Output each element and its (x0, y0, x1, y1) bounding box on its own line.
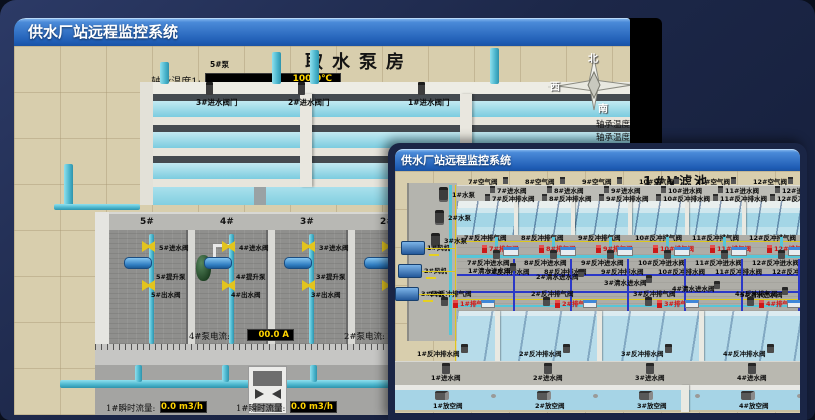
backwash-pump-icon[interactable] (435, 210, 444, 223)
air-valve-label[interactable]: 10#空气阀 (639, 178, 673, 186)
cell-drain-valve-icon[interactable] (599, 194, 604, 201)
basin-wall (140, 125, 630, 132)
intake-valve-icon[interactable] (206, 82, 213, 95)
backwash-pump-icon[interactable] (439, 187, 448, 200)
air-pipe (449, 185, 452, 335)
inlet-valve-label[interactable]: 4#进水阀 (239, 244, 268, 252)
bottom-clear-water-tank (481, 300, 495, 308)
back-window-title: 供水厂站远程监控系统 (28, 23, 178, 41)
compass: 北 西 南 (548, 54, 630, 118)
backwash-vent-label[interactable]: 11#反冲排气阀 (692, 234, 739, 242)
backwash-drain-label[interactable]: 10#反冲排水阀 (658, 268, 705, 276)
cell-drain-valve-label[interactable]: 8#反冲排水阀 (549, 195, 591, 203)
lift-pump-icon[interactable] (284, 257, 312, 269)
cell-drain-valve-icon[interactable] (713, 194, 718, 201)
pool-inlet-valve-icon[interactable] (748, 363, 756, 374)
channel-float (695, 394, 700, 398)
cell-inlet-valve-icon[interactable] (661, 186, 666, 193)
clear-water-tank (674, 247, 690, 256)
bottom-exhaust-valve-icon[interactable] (657, 300, 662, 308)
front-window: 供水厂站远程监控系统 1#V滤池 (388, 143, 807, 420)
backwash-drain-label[interactable]: 9#反冲排水阀 (601, 268, 643, 276)
bottom-pipe-valve-icon[interactable] (441, 297, 448, 306)
pool-divider (699, 311, 704, 361)
clear-water-tank (617, 247, 633, 256)
intake-valve-label[interactable]: 1#进水阀门 (408, 97, 450, 106)
bottom-pipe-valve-icon[interactable] (747, 297, 754, 306)
outlet-branch-pipe (135, 365, 142, 382)
cell-inlet-valve-icon[interactable] (547, 186, 552, 193)
desktop-background: 供水厂站远程监控系统 取水泵房 5#泵 轴承温度1:100.0℃轴承温度2:10… (0, 0, 815, 420)
compass-south: 南 (598, 100, 608, 115)
pool-drain-valve-icon[interactable] (563, 344, 570, 353)
outlet-branch-pipe (222, 365, 229, 382)
exhaust-valve-icon[interactable] (539, 245, 544, 253)
air-valve-icon[interactable] (674, 177, 679, 184)
backwash-pump-label[interactable]: 1#水泵 (452, 191, 475, 199)
pool-inlet-valve-label[interactable]: 3#进水阀 (635, 374, 664, 382)
pump-current-label: 4#泵电流: (189, 330, 230, 340)
front-window-title: 供水厂站远程监控系统 (401, 154, 511, 167)
air-valve-label[interactable]: 11#空气阀 (696, 178, 730, 186)
cell-inlet-valve-icon[interactable] (604, 186, 609, 193)
pool-divider (597, 311, 602, 361)
pool-inlet-valve-icon[interactable] (646, 363, 654, 374)
compass-west: 西 (550, 78, 560, 93)
pump-bay-number: 3# (300, 217, 314, 227)
pool-drain-valve-label[interactable]: 1#反冲排水阀 (417, 350, 459, 358)
pipe-valve-icon[interactable] (493, 250, 500, 259)
blower-icon[interactable] (398, 264, 422, 278)
intake-valve-icon[interactable] (298, 82, 305, 95)
air-valve-label[interactable]: 7#空气阀 (468, 178, 497, 186)
transfer-pipe (54, 204, 140, 210)
pool-inlet-valve-label[interactable]: 1#进水阀 (431, 374, 460, 382)
cell-drain-valve-label[interactable]: 12#反冲排水阀 (777, 195, 800, 203)
bottom-clear-water-tank (787, 300, 800, 308)
exhaust-valve-icon[interactable] (596, 245, 601, 253)
lift-pump-label[interactable]: 5#提升泵 (156, 273, 185, 281)
flow-display: 0.0 m3/h (160, 401, 207, 413)
backwash-inlet-label[interactable]: 11#反冲进水阀 (695, 259, 742, 267)
pump-bay-number: 4# (220, 217, 234, 227)
backwash-inlet-label[interactable]: 10#反冲进水阀 (638, 259, 685, 267)
exhaust-valve-icon[interactable] (767, 245, 772, 253)
backwash-vent-label[interactable]: 10#反冲排气阀 (635, 234, 682, 242)
inlet-valve-label[interactable]: 3#进水阀 (319, 244, 348, 252)
scene-filter-pool: 1#V滤池 (395, 171, 800, 413)
blower-status-tick (426, 277, 436, 279)
channel-divider (681, 385, 689, 412)
cell-drain-valve-label[interactable]: 7#反冲排水阀 (492, 195, 534, 203)
inlet-valve-label[interactable]: 5#进水阀 (159, 244, 188, 252)
pump-panel-header: 5#泵 (210, 59, 229, 70)
outlet-valve-label[interactable]: 3#出水阀 (311, 291, 340, 299)
exhaust-valve-icon[interactable] (653, 245, 658, 253)
back-window-titlebar[interactable]: 供水厂站远程监控系统 (14, 18, 630, 46)
bottom-clear-water-tank (685, 300, 699, 308)
pump-current-label: 2#泵电流: (344, 330, 385, 340)
backwash-vent-label[interactable]: 8#反冲排气阀 (521, 234, 563, 242)
raw-water-pipe (310, 50, 319, 84)
air-valve-icon[interactable] (788, 177, 793, 184)
cell-drain-valve-icon[interactable] (542, 194, 547, 201)
flow-label: 1#瞬时流量: (106, 402, 155, 412)
blower-pipe (425, 248, 455, 249)
blower-pipe (419, 294, 455, 295)
clean-water-valve-label[interactable]: 1#清水进水阀 (468, 267, 510, 275)
cell-inlet-valve-label[interactable]: 8#进水阀 (554, 187, 583, 195)
pump-room-left-wall (95, 212, 109, 365)
raw-water-pipe (160, 62, 169, 84)
air-valve-icon[interactable] (617, 177, 622, 184)
intake-valve-label[interactable]: 3#进水阀门 (196, 97, 238, 106)
outlet-branch-pipe (310, 365, 317, 382)
pool-divider (514, 201, 518, 235)
bottom-pipe-valve-icon[interactable] (645, 297, 652, 306)
partial-sensor-label: 轴承温度2 (596, 131, 630, 141)
intake-valve-icon[interactable] (418, 82, 425, 95)
blower-icon[interactable] (401, 241, 425, 255)
intake-valve-label[interactable]: 2#进水阀门 (288, 97, 330, 106)
cell-inlet-valve-icon[interactable] (718, 186, 723, 193)
cell-inlet-valve-label[interactable]: 10#进水阀 (668, 187, 702, 195)
basin-wall (140, 117, 630, 125)
clean-water-valve-icon[interactable] (782, 287, 788, 295)
empty-valve-icon[interactable] (435, 391, 449, 400)
pool-inlet-valve-label[interactable]: 2#进水阀 (533, 374, 562, 382)
bottom-exhaust-valve-icon[interactable] (759, 300, 764, 308)
backwash-vent-label[interactable]: 9#反冲排气阀 (578, 234, 620, 242)
cell-inlet-valve-label[interactable]: 12#进水阀 (782, 187, 800, 195)
cell-inlet-valve-icon[interactable] (775, 186, 780, 193)
cell-drain-valve-icon[interactable] (485, 194, 490, 201)
blower-icon[interactable] (395, 287, 419, 301)
air-valve-label[interactable]: 8#空气阀 (525, 178, 554, 186)
cell-inlet-valve-label[interactable]: 11#进水阀 (725, 187, 759, 195)
pool-drain-valve-icon[interactable] (461, 344, 468, 353)
backwash-pump-label[interactable]: 2#水泵 (448, 214, 471, 222)
pool-divider (628, 201, 632, 235)
bottom-exhaust-valve-icon[interactable] (453, 300, 458, 308)
pool-drain-valve-label[interactable]: 2#反冲排水阀 (519, 350, 561, 358)
air-valve-icon[interactable] (503, 177, 508, 184)
backwash-branch-pipe (741, 259, 743, 311)
cell-inlet-valve-label[interactable]: 7#进水阀 (497, 187, 526, 195)
pool-inlet-valve-icon[interactable] (442, 363, 450, 374)
raw-water-pipe (490, 48, 499, 84)
forebay-pier (254, 187, 266, 205)
pool-divider (742, 201, 746, 235)
outlet-valve-label[interactable]: 4#出水阀 (231, 291, 260, 299)
air-valve-label[interactable]: 9#空气阀 (582, 178, 611, 186)
blower-status-tick (429, 254, 439, 256)
pipe-valve-icon[interactable] (550, 250, 557, 259)
empty-valve-icon[interactable] (537, 391, 551, 400)
cell-drain-valve-icon[interactable] (656, 194, 661, 201)
empty-valve-label[interactable]: 1#放空阀 (433, 402, 462, 410)
channel-float (797, 394, 800, 398)
backwash-vent-label[interactable]: 7#反冲排气阀 (464, 234, 506, 242)
lift-pump-icon[interactable] (204, 257, 232, 269)
front-window-titlebar[interactable]: 供水厂站远程监控系统 (395, 149, 800, 171)
lift-pump-label[interactable]: 3#提升泵 (316, 273, 345, 281)
raw-water-pipe (272, 52, 281, 84)
lift-pump-label[interactable]: 4#提升泵 (236, 273, 265, 281)
blower-status-tick (423, 300, 433, 302)
clean-water-valve-label[interactable]: 4#清水进水阀 (672, 285, 714, 293)
channel-float (491, 394, 496, 398)
outlet-valve-label[interactable]: 5#出水阀 (151, 291, 180, 299)
pool-drain-valve-label[interactable]: 3#反冲排水阀 (621, 350, 663, 358)
backwash-vent-label[interactable]: 12#反冲排气阀 (749, 234, 796, 242)
empty-valve-icon[interactable] (639, 391, 653, 400)
exhaust-valve-icon[interactable] (710, 245, 715, 253)
bottom-clear-water-tank (583, 300, 597, 308)
backwash-drain-label[interactable]: 11#反冲排水阀 (715, 268, 762, 276)
backwash-inlet-label[interactable]: 8#反冲进水阀 (524, 259, 566, 267)
cell-drain-valve-label[interactable]: 9#反冲排水阀 (606, 195, 648, 203)
pool-drain-valve-icon[interactable] (665, 344, 672, 353)
pool-inlet-valve-label[interactable]: 4#进水阀 (737, 374, 766, 382)
backwash-inlet-label[interactable]: 7#反冲进水阀 (467, 259, 509, 267)
pool-divider (685, 201, 689, 235)
bottom-pipe-valve-icon[interactable] (543, 297, 550, 306)
clear-water-tank (503, 247, 519, 256)
bottom-exhaust-valve-icon[interactable] (555, 300, 560, 308)
bottom-vent-label[interactable]: 2#反冲排气阀 (531, 290, 573, 298)
flow-label: 1#瞬时流量: (236, 402, 285, 412)
air-valve-label[interactable]: 12#空气阀 (753, 178, 787, 186)
flow-meter-display (253, 371, 282, 386)
bottom-vent-label[interactable]: 4#反冲排气阀 (735, 290, 777, 298)
flow-meter-bowtie-icon (267, 389, 281, 399)
flow-display: 0.0 m3/h (290, 401, 337, 413)
bottom-vent-label[interactable]: 3#反冲排气阀 (633, 290, 675, 298)
basin-left-wall (140, 82, 153, 205)
compass-north: 北 (588, 50, 598, 65)
basin-cross-wall (300, 94, 312, 187)
pipe-valve-icon[interactable] (664, 250, 671, 259)
cell-drain-valve-label[interactable]: 10#反冲排水阀 (663, 195, 710, 203)
clean-water-valve-icon[interactable] (510, 263, 516, 271)
pipe-valve-icon[interactable] (721, 250, 728, 259)
clear-water-tank (731, 247, 747, 256)
clean-water-valve-icon[interactable] (714, 281, 720, 289)
pump-current-display: 00.0 A (247, 329, 294, 341)
backwash-inlet-label[interactable]: 12#反冲进水阀 (752, 259, 799, 267)
cell-inlet-valve-icon[interactable] (490, 186, 495, 193)
exhaust-valve-icon[interactable] (482, 245, 487, 253)
channel-float (593, 394, 598, 398)
pool-divider (571, 201, 575, 235)
pipe-valve-icon[interactable] (778, 250, 785, 259)
empty-valve-label[interactable]: 4#放空阀 (739, 402, 768, 410)
clear-water-tank (560, 247, 576, 256)
clean-water-valve-icon[interactable] (646, 275, 652, 283)
partial-sensor-label: 轴承温度1 (596, 118, 630, 128)
empty-valve-label[interactable]: 3#放空阀 (637, 402, 666, 410)
empty-valve-icon[interactable] (741, 391, 755, 400)
lift-pump-icon[interactable] (124, 257, 152, 269)
empty-valve-label[interactable]: 2#放空阀 (535, 402, 564, 410)
clean-water-valve-label[interactable]: 2#清水进水阀 (536, 273, 578, 281)
pool-inlet-valve-icon[interactable] (544, 363, 552, 374)
clean-water-valve-icon[interactable] (578, 269, 584, 277)
air-valve-icon[interactable] (731, 177, 736, 184)
pump-bay-number: 5# (140, 217, 154, 227)
scene-title: 取水泵房 (305, 48, 413, 74)
cell-inlet-valve-label[interactable]: 9#进水阀 (611, 187, 640, 195)
backwash-inlet-label[interactable]: 9#反冲进水阀 (581, 259, 623, 267)
pool-divider (495, 311, 500, 361)
pipe-valve-icon[interactable] (607, 250, 614, 259)
blower-pipe (422, 271, 455, 272)
pool-drain-valve-icon[interactable] (767, 344, 774, 353)
backwash-drain-label[interactable]: 12#反冲排水阀 (772, 268, 800, 276)
clear-water-tank (788, 247, 800, 256)
clean-water-valve-label[interactable]: 3#清水进水阀 (604, 279, 646, 287)
air-valve-icon[interactable] (560, 177, 565, 184)
cell-drain-valve-icon[interactable] (770, 194, 775, 201)
pool-drain-valve-label[interactable]: 4#反冲排水阀 (723, 350, 765, 358)
cell-drain-valve-label[interactable]: 11#反冲排水阀 (720, 195, 767, 203)
